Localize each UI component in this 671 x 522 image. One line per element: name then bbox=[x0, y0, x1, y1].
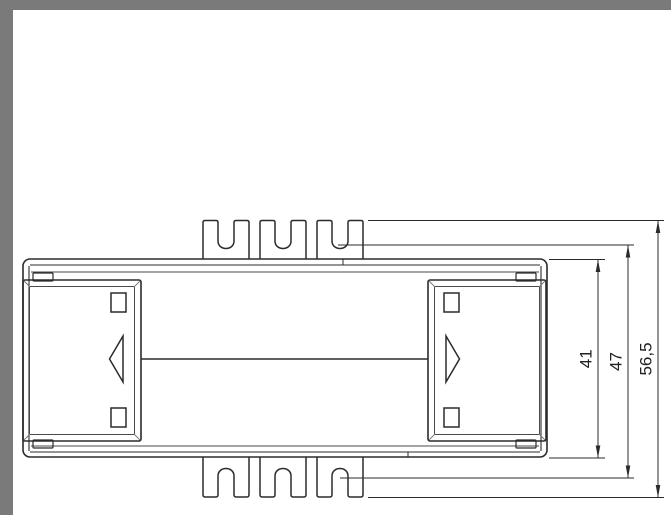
dim-47-arrow-down bbox=[626, 466, 631, 479]
bottom-tab-1 bbox=[203, 458, 249, 498]
top-mounting-tabs bbox=[203, 221, 363, 259]
bottom-tab-3 bbox=[317, 458, 363, 498]
right-block-inner bbox=[435, 287, 540, 435]
left-block-bottom-window bbox=[111, 408, 126, 427]
left-block-top-window bbox=[111, 293, 126, 312]
dim-41-arrow-down bbox=[596, 446, 601, 459]
dim-41-arrow-up bbox=[596, 260, 601, 273]
dim-47-label: 47 bbox=[607, 352, 626, 371]
bottom-mounting-tabs bbox=[203, 458, 363, 498]
dim-56-5-arrow-up bbox=[656, 221, 661, 234]
bottom-tab-2 bbox=[260, 458, 306, 498]
top-tab-1 bbox=[203, 221, 249, 259]
top-tab-3 bbox=[317, 221, 363, 259]
left-arrow-icon bbox=[110, 336, 124, 382]
dim-56-5-label: 56,5 bbox=[637, 342, 656, 375]
body-outline bbox=[23, 259, 547, 457]
right-arrow-icon bbox=[446, 336, 460, 382]
page: 41 47 56,5 bbox=[0, 0, 671, 522]
dim-56-5-arrow-down bbox=[656, 485, 661, 498]
right-terminal-block bbox=[428, 273, 546, 448]
dimension-41: 41 bbox=[549, 260, 605, 459]
device-body bbox=[23, 259, 547, 457]
dim-47-arrow-up bbox=[626, 245, 631, 258]
technical-drawing: 41 47 56,5 bbox=[0, 0, 671, 522]
left-terminal-block bbox=[23, 273, 141, 448]
dim-41-label: 41 bbox=[577, 349, 596, 368]
right-block-bottom-window bbox=[444, 408, 459, 427]
left-block-inner bbox=[30, 287, 135, 435]
top-tab-2 bbox=[260, 221, 306, 259]
right-block-top-window bbox=[444, 293, 459, 312]
